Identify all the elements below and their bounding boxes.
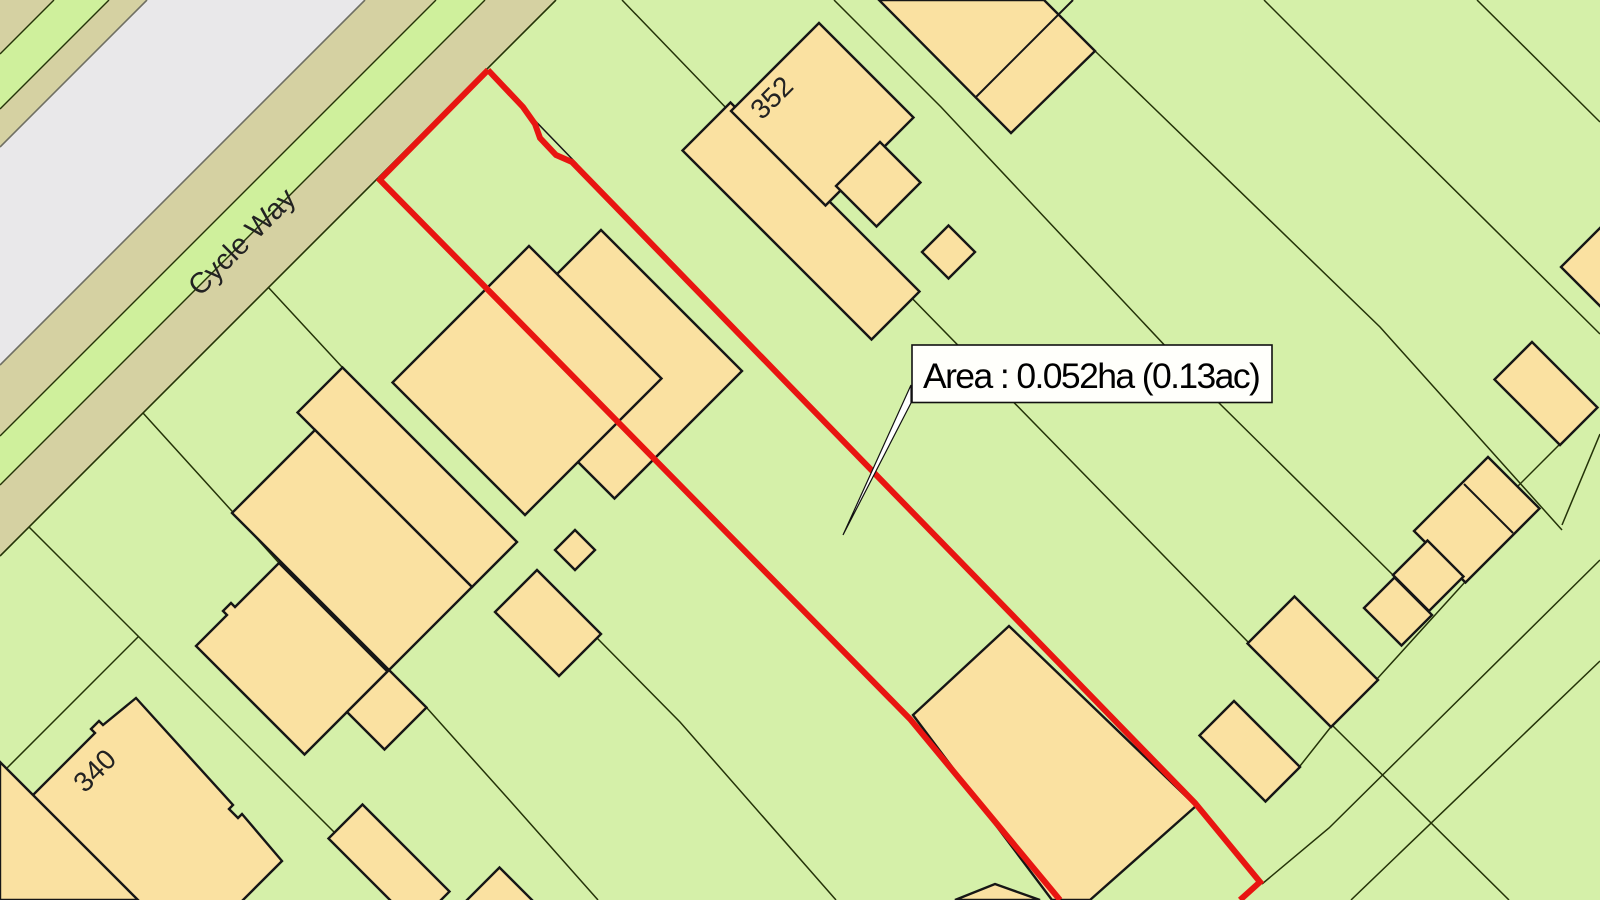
svg-text:Area : 0.052ha (0.13ac): Area : 0.052ha (0.13ac)	[923, 356, 1259, 396]
